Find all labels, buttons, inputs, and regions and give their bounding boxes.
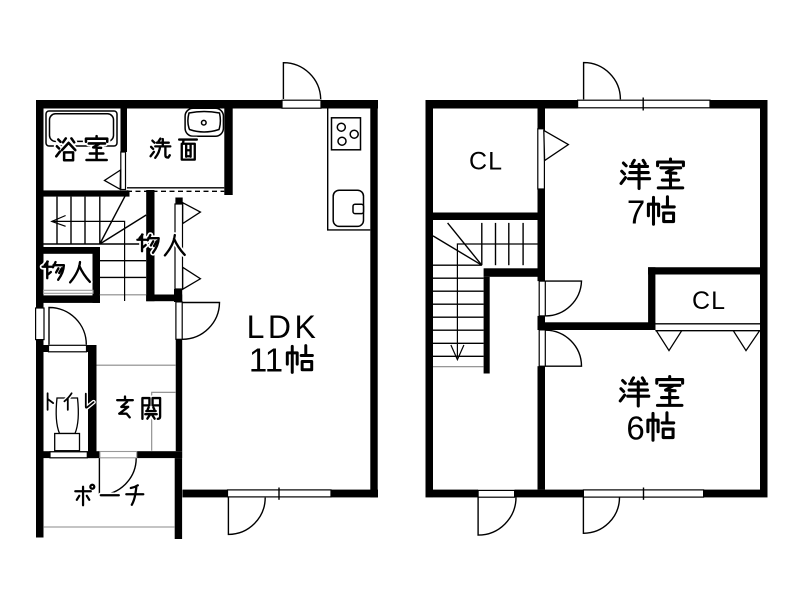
svg-text:11: 11 bbox=[249, 342, 283, 379]
svg-text:7: 7 bbox=[627, 194, 645, 231]
svg-text:6: 6 bbox=[626, 409, 644, 446]
svg-text:CL: CL bbox=[469, 147, 503, 175]
svg-text:CL: CL bbox=[692, 287, 726, 315]
svg-text:LDK: LDK bbox=[247, 309, 320, 345]
